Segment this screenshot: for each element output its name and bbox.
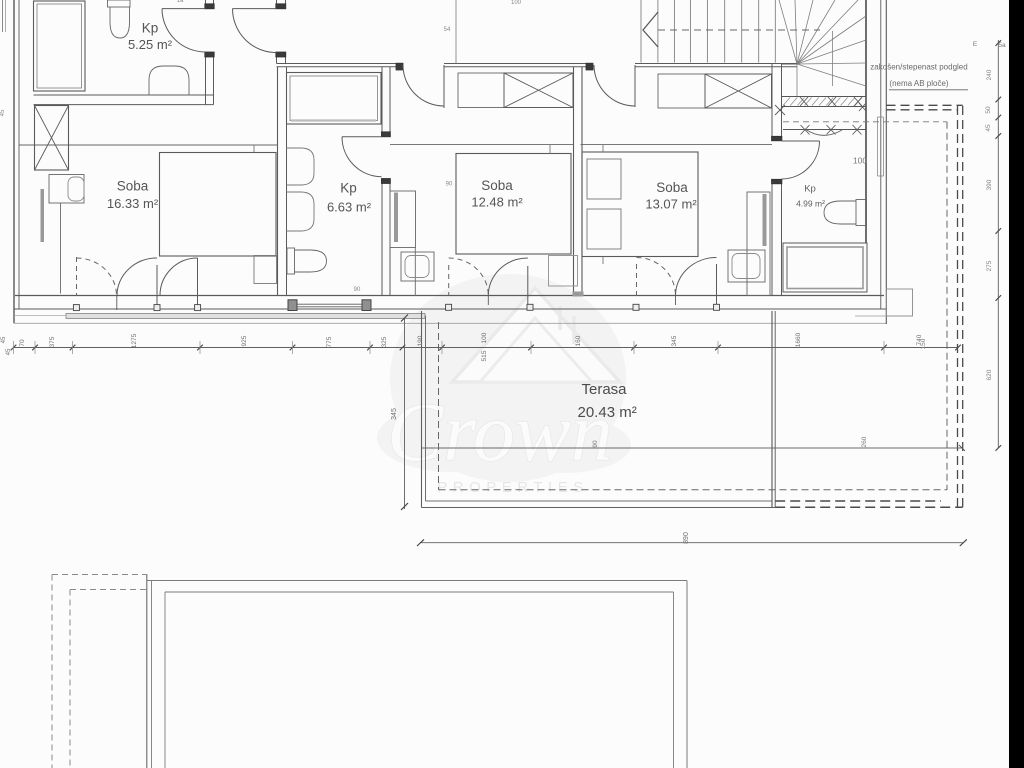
svg-text:45: 45	[0, 109, 6, 116]
svg-text:zakošen/stepenast podgled: zakošen/stepenast podgled	[870, 63, 967, 72]
svg-text:16.33 m²: 16.33 m²	[107, 196, 159, 211]
svg-text:50: 50	[985, 106, 992, 114]
svg-text:70: 70	[19, 339, 26, 347]
svg-text:345: 345	[671, 335, 678, 346]
svg-text:45: 45	[6, 348, 12, 355]
svg-text:13.07 m²: 13.07 m²	[645, 197, 697, 212]
svg-text:Terasa: Terasa	[582, 381, 628, 398]
svg-text:1a: 1a	[177, 0, 184, 4]
svg-text:1275: 1275	[131, 333, 138, 348]
svg-text:6.63 m²: 6.63 m²	[327, 200, 372, 215]
svg-text:5a: 5a	[998, 42, 1006, 49]
svg-text:54: 54	[444, 27, 451, 33]
svg-text:275: 275	[986, 260, 993, 271]
svg-text:4.99 m²: 4.99 m²	[796, 199, 825, 209]
svg-text:Soba: Soba	[656, 180, 688, 195]
svg-text:PROPERTIES: PROPERTIES	[437, 479, 588, 496]
svg-text:1660: 1660	[795, 332, 802, 347]
svg-text:190: 190	[417, 335, 424, 346]
svg-text:260: 260	[861, 436, 868, 447]
svg-text:620: 620	[986, 369, 993, 380]
svg-text:Kp: Kp	[804, 184, 816, 195]
svg-text:90: 90	[354, 287, 361, 293]
svg-text:5.25 m²: 5.25 m²	[128, 37, 173, 52]
svg-text:100: 100	[511, 0, 522, 6]
svg-text:45: 45	[1, 336, 7, 343]
svg-text:90: 90	[592, 440, 599, 448]
svg-text:90: 90	[446, 182, 453, 188]
svg-text:45: 45	[985, 124, 992, 132]
svg-text:E: E	[973, 41, 978, 48]
svg-text:515: 515	[481, 350, 488, 361]
svg-text:Kp: Kp	[142, 21, 159, 36]
svg-text:345: 345	[391, 408, 398, 420]
svg-text:775: 775	[326, 336, 333, 347]
svg-text:240: 240	[986, 69, 993, 80]
svg-text:Kp: Kp	[340, 181, 357, 196]
svg-text:150: 150	[920, 338, 927, 349]
svg-text:925: 925	[241, 335, 248, 346]
svg-text:325: 325	[381, 336, 388, 347]
svg-text:(nema AB ploče): (nema AB ploče)	[889, 79, 948, 88]
svg-text:890: 890	[683, 532, 690, 544]
svg-text:Soba: Soba	[481, 178, 513, 193]
svg-text:160: 160	[575, 335, 582, 346]
svg-text:390: 390	[986, 179, 993, 190]
svg-text:12.48 m²: 12.48 m²	[471, 195, 523, 210]
svg-text:375: 375	[49, 336, 56, 347]
svg-text:100: 100	[853, 156, 867, 166]
svg-text:Soba: Soba	[117, 179, 149, 194]
svg-text:100: 100	[481, 332, 488, 343]
svg-text:20.43 m²: 20.43 m²	[578, 404, 637, 421]
